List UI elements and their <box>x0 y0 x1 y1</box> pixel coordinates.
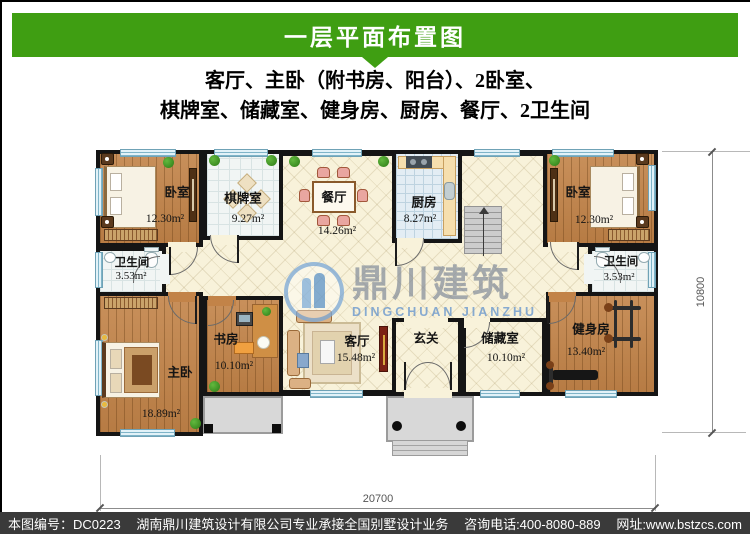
dining-chair <box>299 189 310 202</box>
extension-line <box>655 455 656 511</box>
radiator-cabinet <box>104 297 158 309</box>
watermark: 鼎川建筑 DINGCHUAN JIANZHU <box>284 262 537 322</box>
sofa <box>289 378 311 389</box>
plant-icon <box>549 155 560 166</box>
porch-column <box>456 421 466 431</box>
area-game-room: 9.27m² <box>232 213 265 225</box>
window <box>474 149 520 157</box>
door-opening <box>584 254 594 284</box>
label-dining-room: 餐厅 <box>321 187 346 206</box>
label-living-room: 客厅 <box>344 331 369 350</box>
window <box>95 252 103 288</box>
dimension-line-bottom <box>100 508 656 509</box>
porch-column <box>392 421 402 431</box>
label-master-bedroom: 主卧 <box>167 362 192 381</box>
front-steps <box>392 440 468 456</box>
wardrobe <box>550 168 558 222</box>
nightstand <box>101 216 114 228</box>
door-leaf <box>237 235 239 263</box>
bedside-lamp <box>101 334 108 341</box>
watermark-name: 鼎川建筑 <box>352 266 537 303</box>
entry-door-leaf <box>404 362 406 390</box>
area-storage: 10.10m² <box>487 352 525 364</box>
door-leaf <box>169 247 171 275</box>
window <box>565 390 617 398</box>
label-bedroom-top-right: 卧室 <box>565 182 590 201</box>
accent-chair <box>297 353 309 368</box>
bedside-lamp <box>101 401 108 408</box>
plant-icon <box>266 155 277 166</box>
dining-chair <box>317 167 330 178</box>
entry-door-leaf <box>450 362 452 390</box>
weight-plate <box>604 303 613 312</box>
master-bed <box>102 342 160 398</box>
area-bathroom-right: 3.53m² <box>603 271 634 283</box>
area-bathroom-left: 3.53m² <box>115 270 146 282</box>
window <box>480 390 520 398</box>
area-living-room: 15.48m² <box>337 352 375 364</box>
kitchen-sink <box>444 182 455 200</box>
area-bedroom-top-right: 12.30m² <box>575 214 613 226</box>
footer-phone: 咨询电话:400-8080-889 <box>464 514 601 533</box>
extension-line <box>662 432 746 433</box>
label-study: 书房 <box>213 329 238 348</box>
plant-icon <box>209 381 220 392</box>
footer-company: 湖南鼎川建筑设计有限公司专业承接全国别墅设计业务 <box>136 514 448 533</box>
terrace-post <box>272 424 281 433</box>
plant-icon <box>163 157 174 168</box>
area-master-bedroom: 18.89m² <box>142 408 180 420</box>
window <box>95 168 103 216</box>
area-gym: 13.40m² <box>567 346 605 358</box>
area-kitchen: 8.27m² <box>404 213 437 225</box>
wardrobe <box>189 168 197 222</box>
floor-plan: 卧室 12.30m² 棋牌室 9.27m² 餐厅 14.26m² 厨房 8.27… <box>0 0 750 534</box>
plant-icon <box>190 418 201 429</box>
label-bedroom-top-left: 卧室 <box>164 182 189 201</box>
label-game-room: 棋牌室 <box>224 188 262 207</box>
watermark-latin: DINGCHUAN JIANZHU <box>352 305 537 319</box>
coffee-table <box>320 340 335 364</box>
dimension-height-value: 10800 <box>695 277 707 308</box>
front-porch <box>386 396 474 442</box>
window <box>648 165 656 211</box>
dimension-tick <box>708 429 716 437</box>
stair-arrow-head-icon <box>479 207 489 214</box>
door-leaf <box>577 242 579 270</box>
terrace-post <box>204 424 213 433</box>
dining-chair <box>357 189 368 202</box>
side-terrace <box>203 396 283 434</box>
dresser <box>104 229 158 241</box>
nightstand <box>101 153 114 165</box>
dresser <box>608 229 650 241</box>
label-storage: 储藏室 <box>481 328 519 347</box>
desk-lamp <box>257 336 270 349</box>
label-gym: 健身房 <box>572 319 610 338</box>
area-bedroom-top-left: 12.30m² <box>146 213 184 225</box>
tv-cabinet <box>379 326 388 372</box>
footer-website: 网址:www.bstzcs.com <box>616 514 742 533</box>
plant-icon <box>209 155 220 166</box>
area-dining-room: 14.26m² <box>318 225 356 237</box>
window <box>312 149 362 157</box>
label-kitchen: 厨房 <box>411 192 436 211</box>
dimension-line-right <box>712 152 713 433</box>
label-foyer: 玄关 <box>413 328 438 347</box>
extension-line <box>100 455 101 511</box>
door-leaf <box>195 296 197 324</box>
computer-monitor <box>236 312 253 326</box>
window <box>552 149 614 157</box>
stair-direction-arrow <box>483 212 484 256</box>
plant-icon <box>262 307 271 316</box>
nightstand <box>636 216 649 228</box>
door-leaf <box>547 296 549 324</box>
dining-chair <box>337 167 350 178</box>
nightstand <box>636 153 649 165</box>
window <box>214 149 268 157</box>
stove <box>406 156 432 168</box>
wash-basin <box>638 252 650 263</box>
label-bathroom-right: 卫生间 <box>604 253 639 269</box>
extension-line <box>662 151 750 152</box>
watermark-logo-icon <box>284 262 344 322</box>
page-root: 一层平面布置图 客厅、主卧（附书房、阳台）、2卧室、 棋牌室、储藏室、健身房、厨… <box>0 0 750 534</box>
window <box>120 149 176 157</box>
window <box>310 390 363 398</box>
area-study: 10.10m² <box>215 360 253 372</box>
footer-bar: 本图编号：DC0223 湖南鼎川建筑设计有限公司专业承接全国别墅设计业务 咨询电… <box>0 512 750 534</box>
label-bathroom-left: 卫生间 <box>115 254 150 270</box>
plant-icon <box>378 156 389 167</box>
window <box>120 429 175 437</box>
gym-bench <box>552 370 598 380</box>
weight-plate <box>546 361 554 369</box>
footer-plan-number: 本图编号：DC0223 <box>8 514 121 533</box>
weight-plate <box>546 382 554 390</box>
plant-icon <box>289 156 300 167</box>
dimension-width-value: 20700 <box>363 493 394 505</box>
